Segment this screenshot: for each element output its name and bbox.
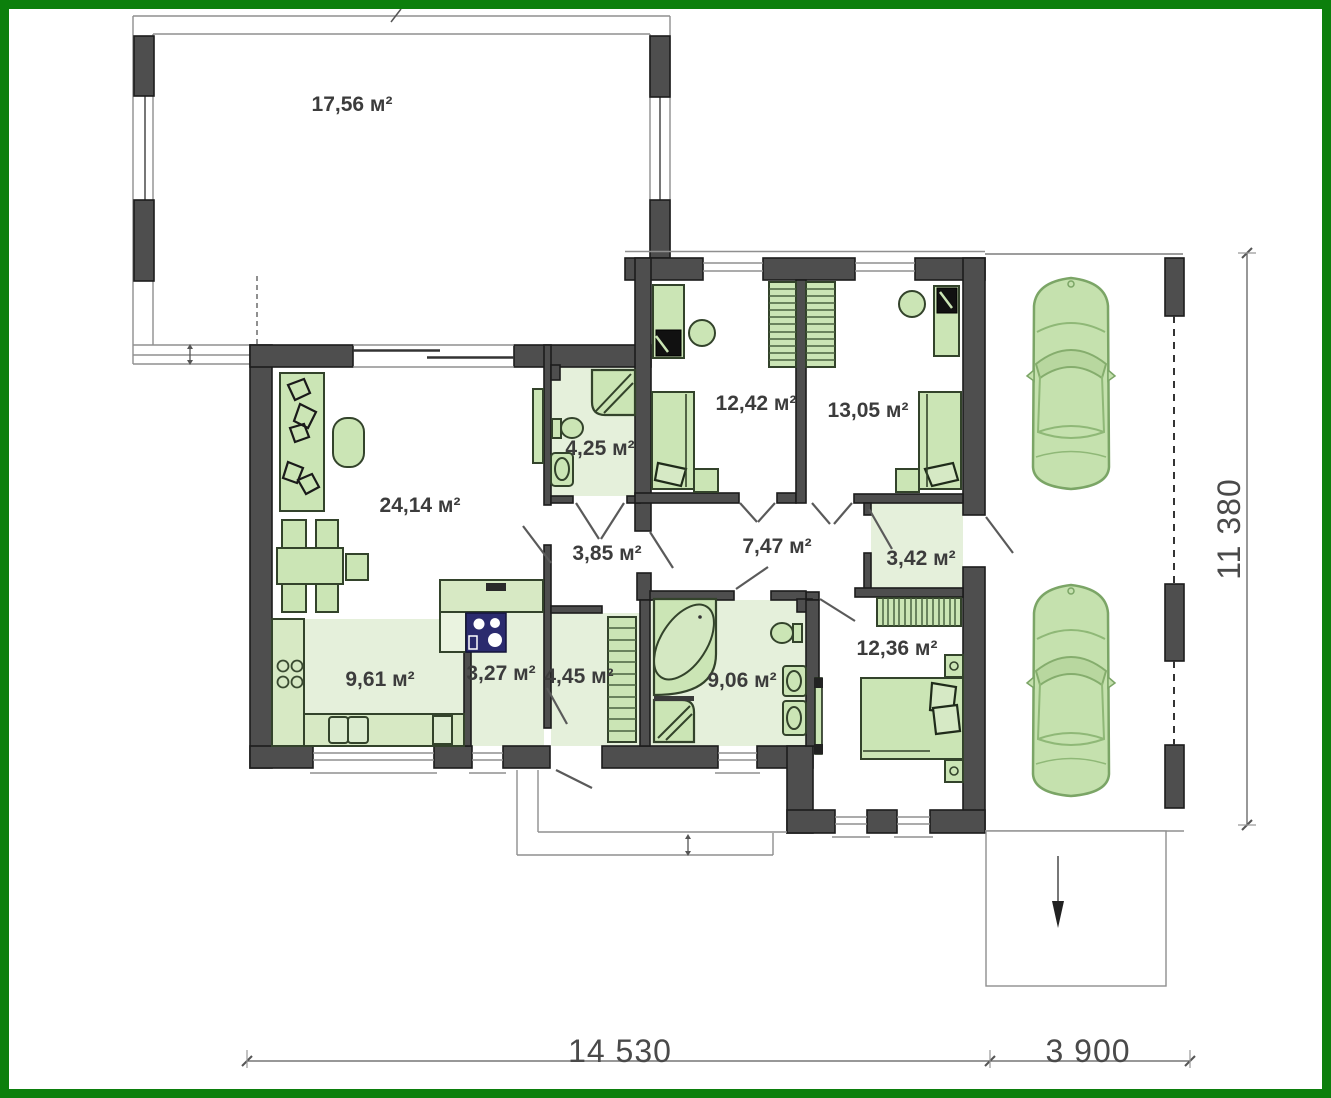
svg-text:3 900: 3 900: [1045, 1033, 1130, 1069]
svg-text:24,14 м²: 24,14 м²: [380, 494, 461, 517]
svg-text:3,85 м²: 3,85 м²: [572, 542, 641, 565]
svg-text:9,06 м²: 9,06 м²: [707, 669, 776, 692]
svg-text:3,27 м²: 3,27 м²: [466, 662, 535, 685]
svg-text:17,56 м²: 17,56 м²: [312, 93, 393, 116]
svg-text:4,25 м²: 4,25 м²: [565, 437, 634, 460]
svg-text:13,05 м²: 13,05 м²: [828, 399, 909, 422]
svg-text:4,45 м²: 4,45 м²: [544, 665, 613, 688]
svg-text:11 380: 11 380: [1211, 478, 1247, 580]
svg-text:12,36 м²: 12,36 м²: [857, 637, 938, 660]
svg-text:3,42 м²: 3,42 м²: [886, 547, 955, 570]
svg-text:12,42 м²: 12,42 м²: [716, 392, 797, 415]
svg-text:9,61 м²: 9,61 м²: [345, 668, 414, 691]
svg-text:7,47 м²: 7,47 м²: [742, 535, 811, 558]
svg-text:14 530: 14 530: [568, 1033, 672, 1069]
